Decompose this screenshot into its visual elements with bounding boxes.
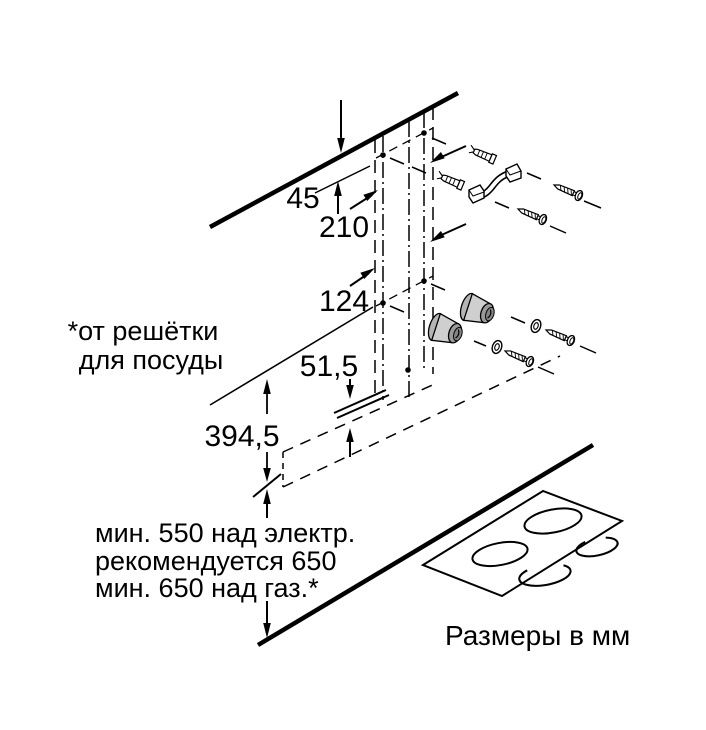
dim-394-5-label: 394,5 (204, 420, 279, 453)
screw-icon-middle (503, 325, 576, 367)
footnote-line-2: для посуды (79, 345, 224, 375)
clearance-line-2: рекомендуется 650 (95, 546, 336, 576)
units-note: Размеры в мм (445, 620, 630, 651)
clearance-line-3: мин. 650 над газ.* (95, 573, 319, 603)
footnote-text: *от решётки для посуды (68, 316, 224, 375)
dim-51-5-label: 51,5 (300, 350, 358, 383)
leader-dashes-middle (390, 284, 596, 374)
footnote-line-1: *от решётки (68, 316, 219, 346)
spacer-icon (425, 292, 498, 349)
drill-lines (375, 107, 433, 400)
cooktop-icon (423, 491, 622, 596)
dimension-45: 45 (286, 166, 370, 215)
mounting-holes (380, 130, 427, 373)
dim-210-label: 210 (319, 211, 369, 244)
mounting-bracket-icon (469, 164, 521, 203)
clearance-text: мин. 550 над электр. рекомендуется 650 м… (95, 518, 355, 603)
wall-top-line (210, 93, 458, 227)
dimension-394-5: 394,5 (204, 379, 281, 497)
wall-anchor-icon (436, 145, 497, 190)
ceiling-arrow (337, 100, 345, 153)
screw-icon-top (516, 180, 584, 225)
dim-45-label: 45 (286, 182, 319, 215)
clearance-line-1: мин. 550 над электр. (95, 518, 355, 548)
washer-icon (490, 318, 542, 355)
installation-diagram-page: 45 210 124 51,5 (0, 0, 706, 730)
installation-diagram: 45 210 124 51,5 (0, 0, 706, 730)
